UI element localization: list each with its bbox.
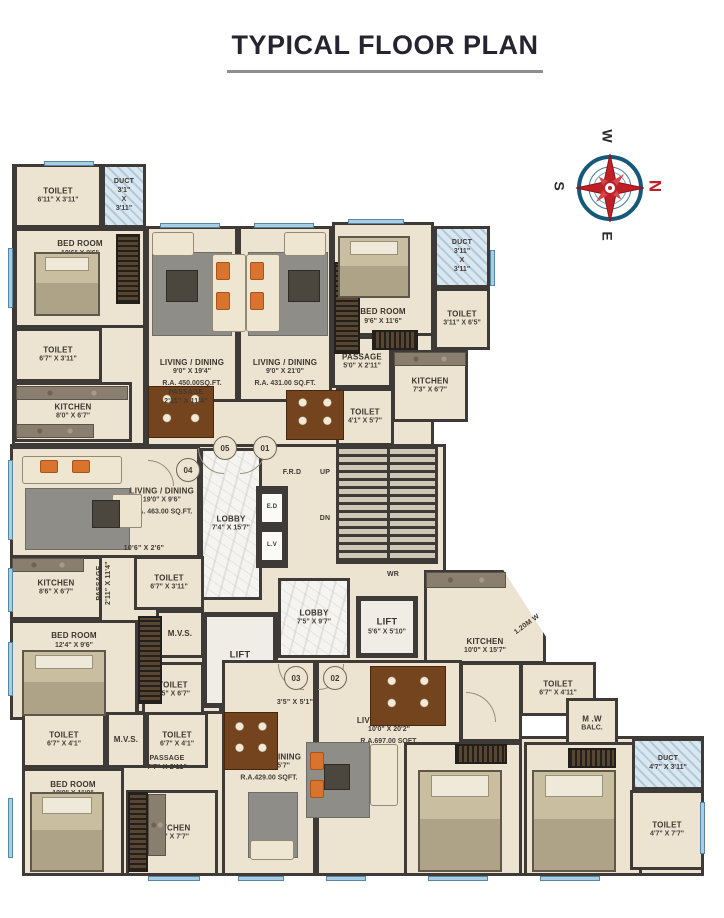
duct-01: DUCT3'11"X3'11" [434, 226, 490, 288]
shaft-lv: L.V [260, 530, 284, 562]
toilet-05-lower-label: TOILET6'7" X 3'11" [39, 345, 77, 364]
toilet-05-lower: TOILET6'7" X 3'11" [14, 328, 102, 382]
tbl-furniture [166, 270, 198, 302]
page-title: TYPICAL FLOOR PLAN [227, 30, 542, 73]
sofa-furniture [250, 840, 294, 860]
window [8, 248, 13, 308]
bed-furniture [22, 650, 106, 716]
counter-furniture [148, 794, 166, 856]
label-passage-left: PASSAGE2'11" X 11'4" [95, 549, 113, 617]
passage-01-label: PASSAGE5'0" X 2'11" [342, 352, 382, 371]
counter-furniture [16, 386, 128, 400]
toilet-04-upper: TOILET6'7" X 3'11" [134, 556, 204, 610]
window [428, 876, 488, 881]
counter-furniture [426, 572, 506, 588]
compass-icon: W N E S [552, 124, 692, 252]
ward-h-furniture [568, 748, 616, 768]
orange-furniture [216, 262, 230, 280]
page-header: TYPICAL FLOOR PLAN [0, 30, 724, 73]
orange-furniture [250, 262, 264, 280]
compass-south-label: S [552, 181, 567, 190]
toilet-02-lower-label: TOILET4'7" X 7'7" [650, 820, 684, 839]
window [540, 876, 600, 881]
flat-marker-02: 02 [323, 666, 347, 690]
compass-west-label: W [599, 129, 615, 143]
shaft-ed-label: E.D [267, 504, 278, 512]
flat-marker-05: 05 [213, 436, 237, 460]
label-passage-03: PASSAGE7'7" X 2'11" [132, 754, 202, 772]
label-passage-top: PASSAGE2'11" X 11'4" [150, 388, 222, 406]
counter-furniture [394, 352, 466, 366]
dining-furniture [370, 666, 446, 726]
toilet-03a: TOILET6'7" X 4'1" [22, 712, 106, 768]
window [8, 642, 13, 696]
window [348, 219, 404, 224]
orange-furniture [250, 292, 264, 310]
orange-furniture [216, 292, 230, 310]
duct-05-label: DUCT3'1"X3'11" [114, 178, 134, 214]
bed-furniture [418, 770, 502, 872]
floor-plan-page: TYPICAL FLOOR PLAN W N E S TOILET6'11" X… [0, 0, 724, 918]
kitchen-01-label: KITCHEN7'3" X 6'7" [412, 376, 449, 395]
toilet-02-upper-label: TOILET6'7" X 4'11" [539, 679, 577, 698]
dining-furniture [224, 712, 278, 770]
orange-furniture [72, 460, 90, 473]
label-up: UP [308, 468, 342, 477]
kitchen-05-label: KITCHEN8'0" X 6'7" [55, 402, 92, 421]
window [44, 161, 94, 166]
toilet-02-lower: TOILET4'7" X 7'7" [630, 790, 704, 870]
label-frd: F.R.D [272, 468, 312, 477]
living-01-label: LIVING / DINING9'0" X 21'0"R.A. 431.00 S… [253, 358, 317, 389]
label-dn: DN [308, 514, 342, 523]
shaft-lv-label: L.V [267, 542, 277, 550]
bedroom-01-label: BED ROOM9'6" X 11'6" [360, 307, 406, 326]
window [490, 250, 495, 286]
counter-furniture [16, 424, 94, 438]
duct-01-label: DUCT3'11"X3'11" [452, 239, 472, 275]
ward-h-furniture [455, 744, 507, 764]
ward-furniture [116, 234, 140, 304]
counter-furniture [12, 558, 84, 572]
orange-furniture [310, 780, 324, 798]
window [238, 876, 284, 881]
toilet-03b-label: TOILET6'7" X 4'1" [160, 730, 194, 749]
sofa-furniture [370, 744, 398, 806]
window [148, 876, 200, 881]
mvs-04: M.V.S. [156, 610, 204, 658]
window [160, 223, 220, 228]
flat-marker-03: 03 [284, 666, 308, 690]
lobby-upper-label: LOBBY7'4" X 15'7" [212, 514, 250, 533]
toilet-03a-label: TOILET6'7" X 4'1" [47, 730, 81, 749]
tbl-furniture [92, 500, 120, 528]
ward-furniture [128, 792, 148, 872]
ward-h-furniture [372, 330, 418, 350]
kitchen-02-label: KITCHEN10'0" X 15'7" [464, 637, 506, 656]
bed-furniture [532, 770, 616, 872]
compass-rose: W N E S [552, 124, 692, 257]
window [8, 568, 13, 612]
mvs-04-label: M.V.S. [168, 629, 192, 639]
window [700, 802, 705, 854]
duct-02: DUCT4'7" X 3'11" [632, 738, 704, 790]
bed-furniture [30, 792, 104, 872]
bed-furniture [338, 236, 410, 298]
lobby-lower: LOBBY7'5" X 9'7" [278, 578, 350, 658]
toilet-05-upper-label: TOILET6'11" X 3'11" [37, 186, 78, 205]
flat-marker-04: 04 [176, 458, 200, 482]
flat-marker-01: 01 [253, 436, 277, 460]
kitchen-04-label: KITCHEN8'6" X 6'7" [38, 578, 75, 597]
ward-furniture [138, 616, 162, 704]
mvs-03-label: M.V.S. [114, 735, 138, 745]
shaft-ed: E.D [260, 492, 284, 524]
lift-2: LIFT5'6" X 5'10" [356, 596, 418, 658]
sofa-furniture [284, 232, 326, 256]
lobby-upper: LOBBY7'4" X 15'7" [200, 448, 262, 600]
compass-north-label: N [646, 180, 665, 192]
compass-east-label: E [599, 231, 615, 240]
window [8, 460, 13, 540]
window [326, 876, 366, 881]
label-dim-35: 3'5" X 5'1" [264, 698, 326, 707]
toilet-01-lower-label: TOILET4'1" X 5'7" [348, 407, 382, 426]
toilet-04-upper-label: TOILET6'7" X 3'11" [150, 573, 188, 592]
label-dim-106: 10'6" X 2'6" [112, 544, 176, 553]
bed-furniture [34, 252, 100, 316]
duct-02-label: DUCT4'7" X 3'11" [649, 755, 687, 773]
tbl-furniture [324, 764, 350, 790]
tbl-furniture [288, 270, 320, 302]
toilet-01-lower: TOILET4'1" X 5'7" [336, 388, 394, 446]
window [254, 223, 314, 228]
living-05-label: LIVING / DINING9'0" X 19'4"R.A. 450.00SQ… [160, 358, 224, 389]
stairs-furniture [336, 446, 438, 564]
lift-2-label: LIFT5'6" X 5'10" [368, 616, 406, 637]
toilet-05-upper: TOILET6'11" X 3'11" [14, 164, 102, 228]
duct-05: DUCT3'1"X3'11" [102, 164, 146, 228]
orange-furniture [310, 752, 324, 770]
bedroom-04-label: BED ROOM12'4" X 9'6" [51, 631, 97, 650]
orange-furniture [40, 460, 58, 473]
toilet-01-upper-label: TOILET3'11" X 6'5" [443, 309, 481, 328]
lobby-lower-label: LOBBY7'5" X 9'7" [297, 608, 331, 627]
sofa-furniture [152, 232, 194, 256]
toilet-01-upper: TOILET3'11" X 6'5" [434, 288, 490, 350]
dining-furniture [286, 390, 344, 440]
window [8, 798, 13, 858]
mw-balcony-label: M .WBALC. [581, 714, 602, 733]
label-wr: WR [376, 570, 410, 579]
